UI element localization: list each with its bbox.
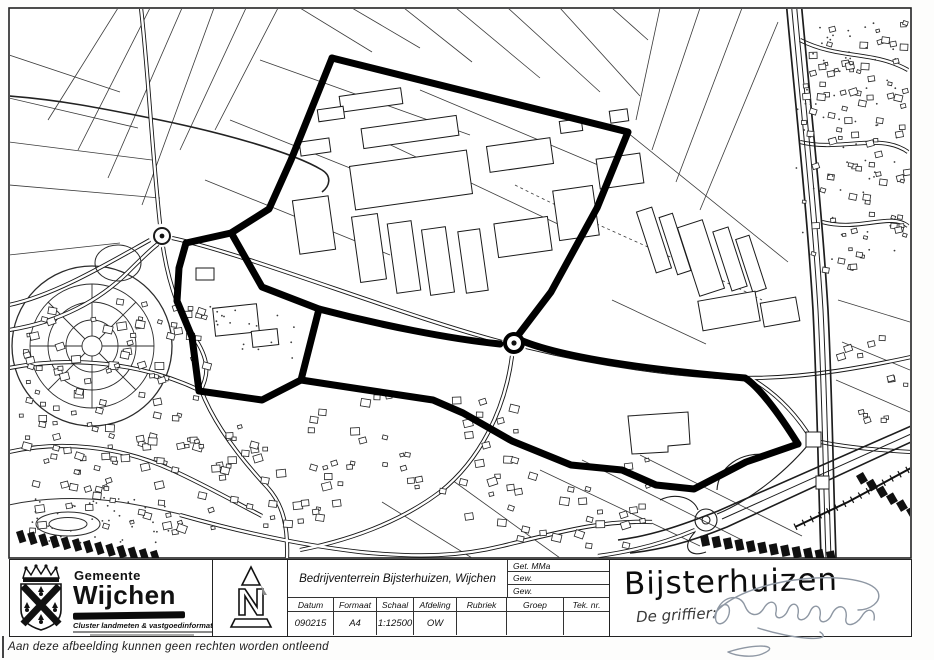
surveyor-logo-box xyxy=(212,559,289,637)
col-header-formaat: Formaat xyxy=(334,598,377,611)
col-header-rubriek: Rubriek xyxy=(457,598,507,611)
scan-underline xyxy=(73,631,213,633)
revision-row: Get. MMa xyxy=(508,560,609,572)
disclaimer-text: Aan deze afbeelding kunnen geen rechten … xyxy=(8,641,329,653)
overpass-bridge xyxy=(806,432,821,447)
value-datum: 090215 xyxy=(288,612,334,635)
value-groep xyxy=(507,612,564,635)
map-canvas xyxy=(0,0,934,560)
plan-name-box: Bijsterhuizen De griffier: xyxy=(609,559,912,637)
value-teknr xyxy=(564,612,609,635)
value-formaat: A4 xyxy=(334,612,377,635)
redaction-bar xyxy=(73,611,185,620)
value-schaal: 1:12500 xyxy=(377,612,414,635)
scan-underline xyxy=(90,634,194,636)
value-afdeling: OW xyxy=(414,612,457,635)
col-header-afdeling: Afdeling xyxy=(414,598,457,611)
map-sheet: Gemeente Wijchen Cluster landmeten & vas… xyxy=(0,0,934,660)
project-title: Bedrijventerrein Bijsterhuizen, Wijchen xyxy=(288,560,507,597)
table-header-row: Datum Formaat Schaal Afdeling Rubriek Gr… xyxy=(288,597,609,612)
sheet-corner-tick xyxy=(2,636,4,658)
pyramid-n-logo-icon xyxy=(221,563,281,633)
municipality-logo-box: Gemeente Wijchen Cluster landmeten & vas… xyxy=(9,559,214,637)
revision-row: Gew. xyxy=(508,585,609,597)
col-header-teknr: Tek. nr. xyxy=(564,598,609,611)
col-header-groep: Groep xyxy=(507,598,564,611)
municipality-department: Cluster landmeten & vastgoedinformatie xyxy=(73,621,219,630)
overpass-bridge xyxy=(816,476,829,489)
table-value-row: 090215 A4 1:12500 OW xyxy=(288,612,609,635)
revision-column: Get. MMa Gew. Gew. xyxy=(507,560,609,597)
wijchen-coat-of-arms-icon xyxy=(15,562,71,634)
col-header-datum: Datum xyxy=(288,598,334,611)
drawing-info-table: Bedrijventerrein Bijsterhuizen, Wijchen … xyxy=(287,559,611,637)
revision-row: Gew. xyxy=(508,572,609,584)
col-header-schaal: Schaal xyxy=(377,598,414,611)
value-rubriek xyxy=(457,612,507,635)
handwritten-signature xyxy=(610,560,913,670)
municipality-name-line2: Wijchen xyxy=(73,580,176,611)
